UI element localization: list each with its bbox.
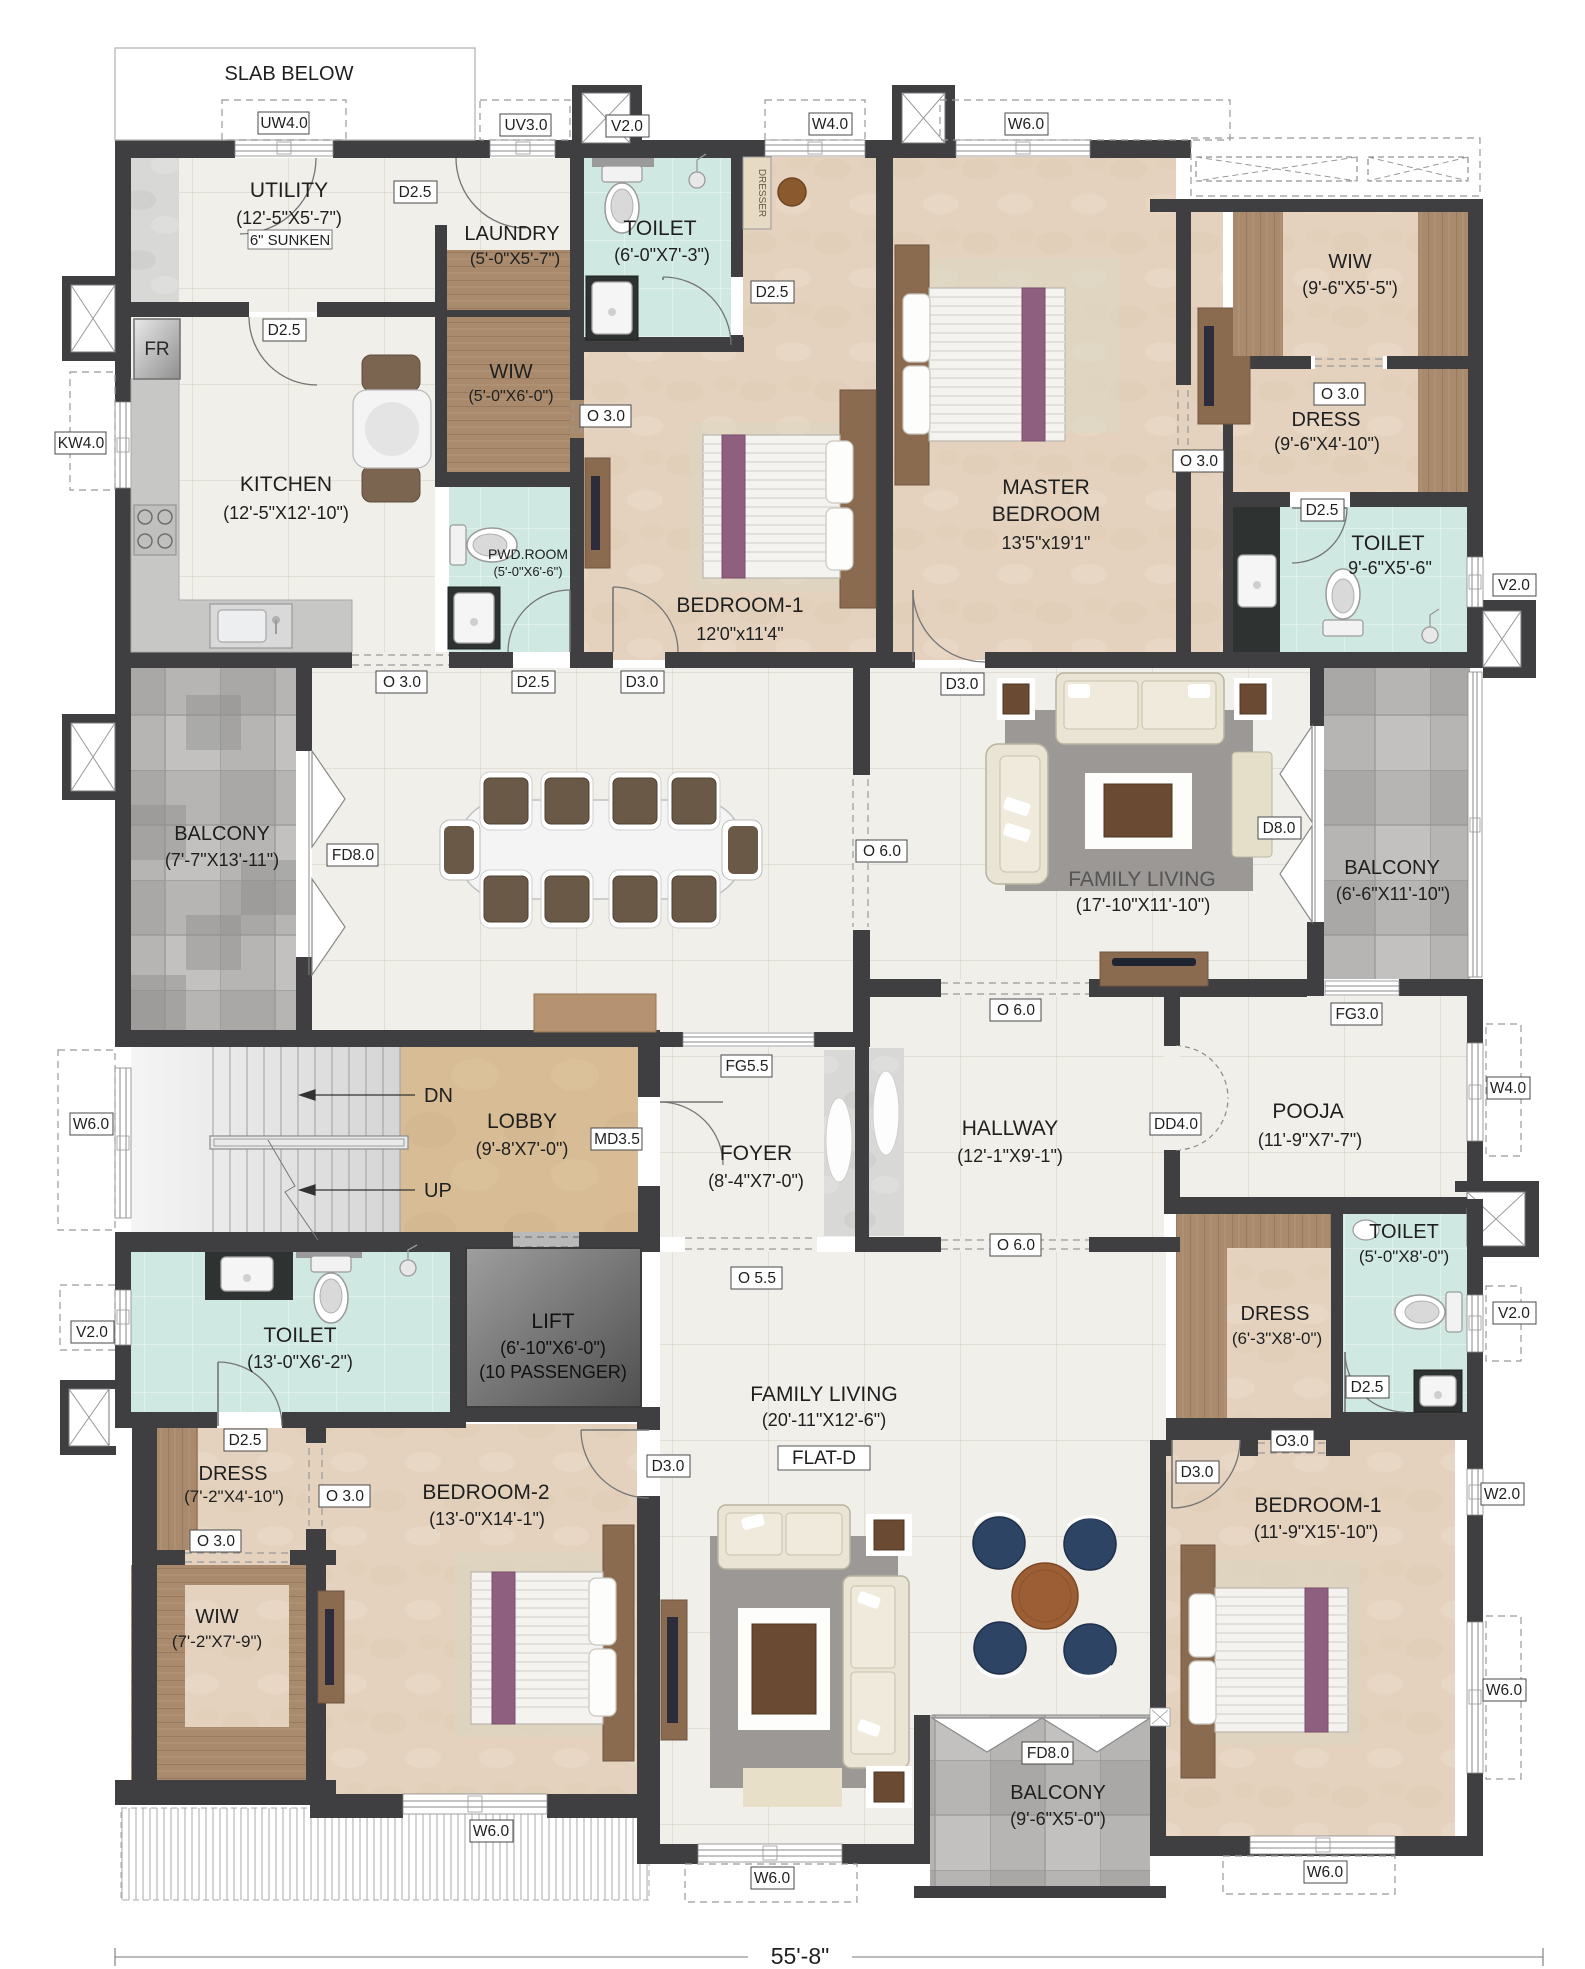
svg-text:BALCONY: BALCONY [1010, 1782, 1106, 1804]
svg-text:UP: UP [424, 1180, 452, 1202]
svg-text:(9'-6"X4'-10"): (9'-6"X4'-10") [1274, 434, 1380, 454]
svg-text:W4.0: W4.0 [812, 116, 849, 133]
svg-text:LAUNDRY: LAUNDRY [464, 223, 559, 245]
svg-text:O3.0: O3.0 [1275, 1433, 1309, 1450]
svg-text:W6.0: W6.0 [1486, 1682, 1523, 1699]
svg-text:(13'-0"X6'-2"): (13'-0"X6'-2") [247, 1352, 353, 1372]
svg-text:V2.0: V2.0 [1498, 577, 1530, 594]
svg-text:O 6.0: O 6.0 [997, 1002, 1035, 1019]
svg-text:FOYER: FOYER [720, 1142, 792, 1165]
svg-text:D3.0: D3.0 [946, 676, 979, 693]
svg-text:WIW: WIW [1328, 251, 1371, 273]
svg-text:(11'-9"X7'-7"): (11'-9"X7'-7") [1258, 1130, 1362, 1150]
svg-text:D2.5: D2.5 [517, 674, 550, 691]
svg-text:V2.0: V2.0 [76, 1324, 108, 1341]
svg-text:FAMILY LIVING: FAMILY LIVING [1068, 868, 1215, 891]
svg-text:FG3.0: FG3.0 [1335, 1006, 1378, 1023]
svg-text:DRESS: DRESS [1241, 1303, 1310, 1325]
svg-text:(5'-0"X5'-7"): (5'-0"X5'-7") [470, 249, 560, 268]
svg-text:(6'-10"X6'-0"): (6'-10"X6'-0") [500, 1338, 606, 1358]
svg-text:D2.5: D2.5 [399, 184, 432, 201]
svg-text:O 3.0: O 3.0 [1321, 386, 1359, 403]
svg-text:UW4.0: UW4.0 [260, 115, 308, 132]
svg-text:DRESSER: DRESSER [756, 169, 767, 217]
svg-text:W6.0: W6.0 [1307, 1864, 1344, 1881]
svg-text:DRESS: DRESS [1292, 409, 1361, 431]
svg-text:O 3.0: O 3.0 [326, 1488, 364, 1505]
svg-text:(10 PASSENGER): (10 PASSENGER) [479, 1362, 627, 1382]
svg-text:D3.0: D3.0 [1181, 1464, 1214, 1481]
svg-text:(6'-0"X7'-3"): (6'-0"X7'-3") [614, 245, 710, 265]
svg-text:TOILET: TOILET [263, 1324, 336, 1347]
svg-text:D2.5: D2.5 [229, 1432, 262, 1449]
svg-text:O 3.0: O 3.0 [1180, 453, 1218, 470]
svg-text:(5'-0"X6'-6"): (5'-0"X6'-6") [493, 564, 562, 579]
svg-text:(9'-6"X5'-0"): (9'-6"X5'-0") [1010, 1809, 1106, 1829]
svg-text:(12'-5"X5'-7"): (12'-5"X5'-7") [236, 208, 342, 228]
svg-text:UV3.0: UV3.0 [504, 117, 547, 134]
svg-text:DN: DN [424, 1085, 453, 1107]
svg-text:D2.5: D2.5 [1351, 1379, 1384, 1396]
svg-text:TOILET: TOILET [1369, 1221, 1439, 1243]
svg-text:FD8.0: FD8.0 [1027, 1745, 1070, 1762]
svg-text:UTILITY: UTILITY [250, 179, 328, 202]
svg-text:BALCONY: BALCONY [174, 823, 270, 845]
svg-text:(5'-0"X8'-0"): (5'-0"X8'-0") [1359, 1247, 1449, 1266]
svg-text:(17'-10"X11'-10"): (17'-10"X11'-10") [1076, 895, 1210, 915]
svg-text:TOILET: TOILET [1351, 532, 1424, 555]
svg-text:W6.0: W6.0 [473, 1823, 510, 1840]
svg-text:(7'-7"X13'-11"): (7'-7"X13'-11") [165, 850, 279, 870]
svg-text:(9'-6"X5'-5"): (9'-6"X5'-5") [1302, 278, 1398, 298]
svg-text:W6.0: W6.0 [754, 1870, 791, 1887]
svg-text:D3.0: D3.0 [652, 1458, 685, 1475]
svg-text:FR: FR [144, 339, 169, 360]
svg-text:9'-6"X5'-6": 9'-6"X5'-6" [1348, 558, 1432, 578]
svg-text:D2.5: D2.5 [268, 322, 301, 339]
svg-text:BEDROOM: BEDROOM [992, 503, 1101, 526]
svg-text:(7'-2"X7'-9"): (7'-2"X7'-9") [172, 1632, 262, 1651]
svg-text:D3.0: D3.0 [626, 674, 659, 691]
svg-text:(6'-3"X8'-0"): (6'-3"X8'-0") [1232, 1329, 1322, 1348]
svg-text:D2.5: D2.5 [1306, 502, 1339, 519]
svg-text:(12'-5"X12'-10"): (12'-5"X12'-10") [223, 503, 349, 523]
svg-text:KITCHEN: KITCHEN [240, 473, 332, 496]
svg-text:W6.0: W6.0 [1008, 116, 1045, 133]
svg-text:13'5"x19'1": 13'5"x19'1" [1002, 533, 1091, 553]
svg-text:V2.0: V2.0 [1498, 1305, 1530, 1322]
svg-text:6" SUNKEN: 6" SUNKEN [250, 232, 330, 249]
svg-text:O 6.0: O 6.0 [997, 1237, 1035, 1254]
svg-text:O 5.5: O 5.5 [738, 1270, 776, 1287]
svg-text:(13'-0"X14'-1"): (13'-0"X14'-1") [429, 1509, 545, 1529]
svg-text:DD4.0: DD4.0 [1154, 1116, 1198, 1133]
svg-text:WIW: WIW [489, 361, 532, 383]
svg-text:FLAT-D: FLAT-D [792, 1448, 856, 1469]
svg-text:FAMILY LIVING: FAMILY LIVING [750, 1383, 897, 1406]
svg-text:KW4.0: KW4.0 [58, 435, 105, 452]
svg-text:(11'-9"X15'-10"): (11'-9"X15'-10") [1254, 1522, 1378, 1542]
svg-text:D2.5: D2.5 [756, 284, 789, 301]
svg-text:SLAB BELOW: SLAB BELOW [225, 63, 354, 85]
svg-text:55'-8": 55'-8" [771, 1943, 830, 1969]
svg-text:WIW: WIW [195, 1606, 238, 1628]
svg-text:MD3.5: MD3.5 [594, 1131, 640, 1148]
svg-text:LIFT: LIFT [531, 1310, 574, 1333]
svg-text:12'0"x11'4": 12'0"x11'4" [696, 624, 783, 644]
svg-text:PWD.ROOM: PWD.ROOM [488, 546, 568, 562]
svg-text:BEDROOM-1: BEDROOM-1 [1254, 1494, 1381, 1517]
svg-text:BALCONY: BALCONY [1344, 857, 1440, 879]
svg-text:W6.0: W6.0 [73, 1116, 110, 1133]
svg-text:BEDROOM-1: BEDROOM-1 [676, 594, 803, 617]
svg-text:POOJA: POOJA [1272, 1100, 1343, 1123]
svg-text:O 3.0: O 3.0 [383, 674, 421, 691]
svg-text:(8'-4"X7'-0"): (8'-4"X7'-0") [708, 1171, 804, 1191]
svg-text:(12'-1"X9'-1"): (12'-1"X9'-1") [957, 1146, 1063, 1166]
svg-text:DRESS: DRESS [199, 1463, 268, 1485]
svg-text:FG5.5: FG5.5 [725, 1058, 768, 1075]
svg-text:(9'-8'X7'-0"): (9'-8'X7'-0") [476, 1139, 569, 1159]
svg-text:W4.0: W4.0 [1490, 1080, 1527, 1097]
svg-text:D8.0: D8.0 [1263, 820, 1296, 837]
svg-text:(5'-0"X6'-0"): (5'-0"X6'-0") [468, 388, 553, 405]
svg-text:O 6.0: O 6.0 [863, 843, 901, 860]
svg-text:TOILET: TOILET [623, 217, 696, 240]
svg-text:FD8.0: FD8.0 [332, 847, 375, 864]
svg-text:BEDROOM-2: BEDROOM-2 [422, 1481, 549, 1504]
svg-text:LOBBY: LOBBY [487, 1110, 557, 1133]
svg-text:V2.0: V2.0 [611, 118, 643, 135]
svg-text:(20'-11"X12'-6"): (20'-11"X12'-6") [762, 1410, 886, 1430]
svg-text:O 3.0: O 3.0 [197, 1533, 235, 1550]
svg-text:(7'-2"X4'-10"): (7'-2"X4'-10") [184, 1487, 284, 1506]
svg-text:MASTER: MASTER [1002, 476, 1090, 499]
svg-text:(6'-6"X11'-10"): (6'-6"X11'-10") [1336, 884, 1450, 904]
svg-text:O 3.0: O 3.0 [587, 408, 625, 425]
svg-text:HALLWAY: HALLWAY [962, 1117, 1058, 1140]
svg-text:W2.0: W2.0 [1484, 1486, 1521, 1503]
